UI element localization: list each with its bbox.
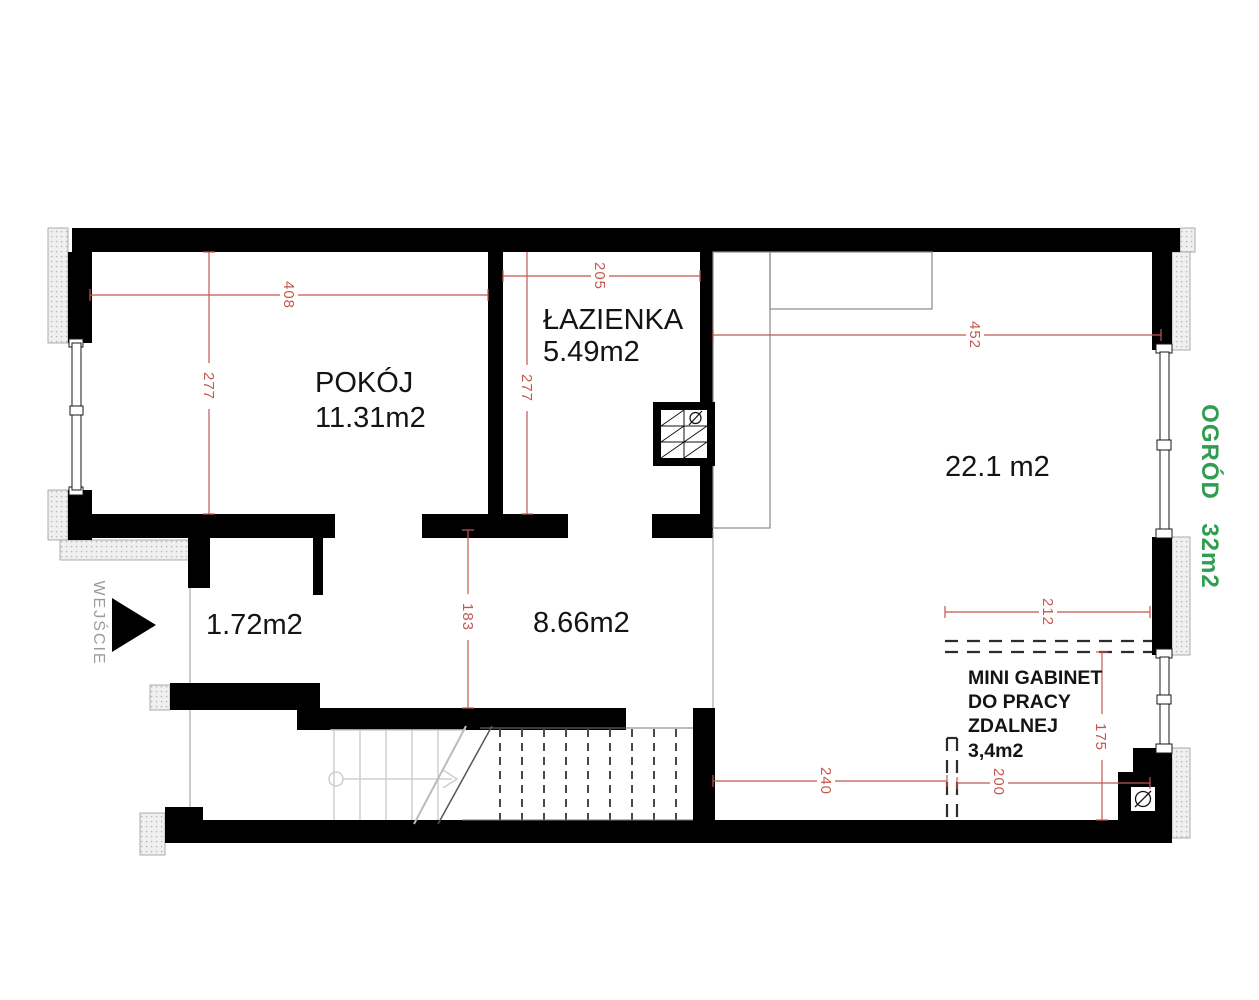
open-boundary-lines	[190, 530, 713, 807]
dim-office-depth: 175	[1092, 723, 1109, 751]
drain-icon	[1130, 786, 1156, 812]
window-west-mullion	[70, 406, 83, 415]
dim-hall-width: 240	[817, 767, 834, 795]
room-pokoj-area: 11.31m2	[315, 402, 426, 434]
garden-area: 32m2	[1196, 523, 1223, 588]
dim-hall-depth: 183	[459, 603, 476, 631]
room-office-line3: ZDALNEJ	[968, 715, 1058, 737]
room-hall-area: 8.66m2	[533, 607, 630, 639]
stairs-upper-flight-dashed	[500, 729, 676, 820]
wall-south-pokoj	[68, 514, 335, 538]
floor-plan: 408 277 205 277 452 183 240 200 212 175 …	[0, 0, 1259, 1000]
dim-pokoj-width: 408	[280, 281, 297, 309]
wall-above-stairs	[297, 708, 626, 730]
wall-vestibule-stub	[313, 538, 323, 595]
room-lazienka-name: ŁAZIENKA	[543, 304, 684, 336]
room-office-area: 3,4m2	[968, 740, 1023, 762]
floor-plan-page: 408 277 205 277 452 183 240 200 212 175 …	[0, 0, 1259, 1000]
dim-office-top-width: 212	[1039, 598, 1056, 626]
wall-south-bath	[652, 514, 713, 538]
dim-lazienka-width: 205	[591, 262, 608, 290]
dim-office-bottom-width: 200	[990, 768, 1007, 796]
wall-entry-lower	[170, 683, 320, 710]
wall-lazienka-east	[700, 252, 713, 514]
dim-living-width: 452	[966, 321, 983, 349]
stairs-break-line-dark	[438, 726, 492, 824]
window-east-a-cap-bottom	[1156, 529, 1172, 538]
wall-pokoj-lazienka	[488, 252, 503, 514]
garden-label: OGRÓD 32m2	[1196, 404, 1224, 589]
stairs-lower-flight	[329, 730, 466, 820]
wall-stair-east	[693, 708, 715, 822]
entrance-label: WEJŚCIE	[90, 580, 109, 665]
wall-bottom-left	[190, 820, 712, 843]
room-office-line2: DO PRACY	[968, 691, 1071, 713]
window-east-b-cap-bottom	[1156, 744, 1172, 753]
wall-bottom-right	[712, 820, 1133, 843]
wall-east-mid	[1152, 537, 1172, 655]
wall-west-upper	[68, 252, 92, 343]
dim-lazienka-depth: 277	[518, 374, 535, 402]
counter-outline	[713, 252, 932, 528]
room-lazienka-area: 5.49m2	[543, 336, 640, 368]
room-vestibule-area: 1.72m2	[206, 609, 303, 641]
stairs-break-line-light	[414, 726, 466, 824]
window-east-b-mullion	[1157, 695, 1171, 704]
ventilation-shaft-icon	[653, 402, 715, 466]
wall-entry-stub	[188, 538, 210, 588]
room-living-area: 22.1 m2	[945, 451, 1050, 483]
wall-south-mid	[422, 514, 568, 538]
staircase	[329, 726, 693, 824]
room-pokoj-name: POKÓJ	[315, 366, 413, 399]
garden-name: OGRÓD	[1196, 404, 1224, 500]
window-east-a-mullion	[1157, 440, 1171, 450]
dim-pokoj-depth: 277	[200, 372, 217, 400]
entrance-arrow-icon	[112, 598, 156, 652]
stairs-walkline-start	[329, 772, 343, 786]
window-west	[72, 343, 81, 490]
room-office-line1: MINI GABINET	[968, 667, 1102, 689]
wall-north	[72, 228, 1180, 252]
